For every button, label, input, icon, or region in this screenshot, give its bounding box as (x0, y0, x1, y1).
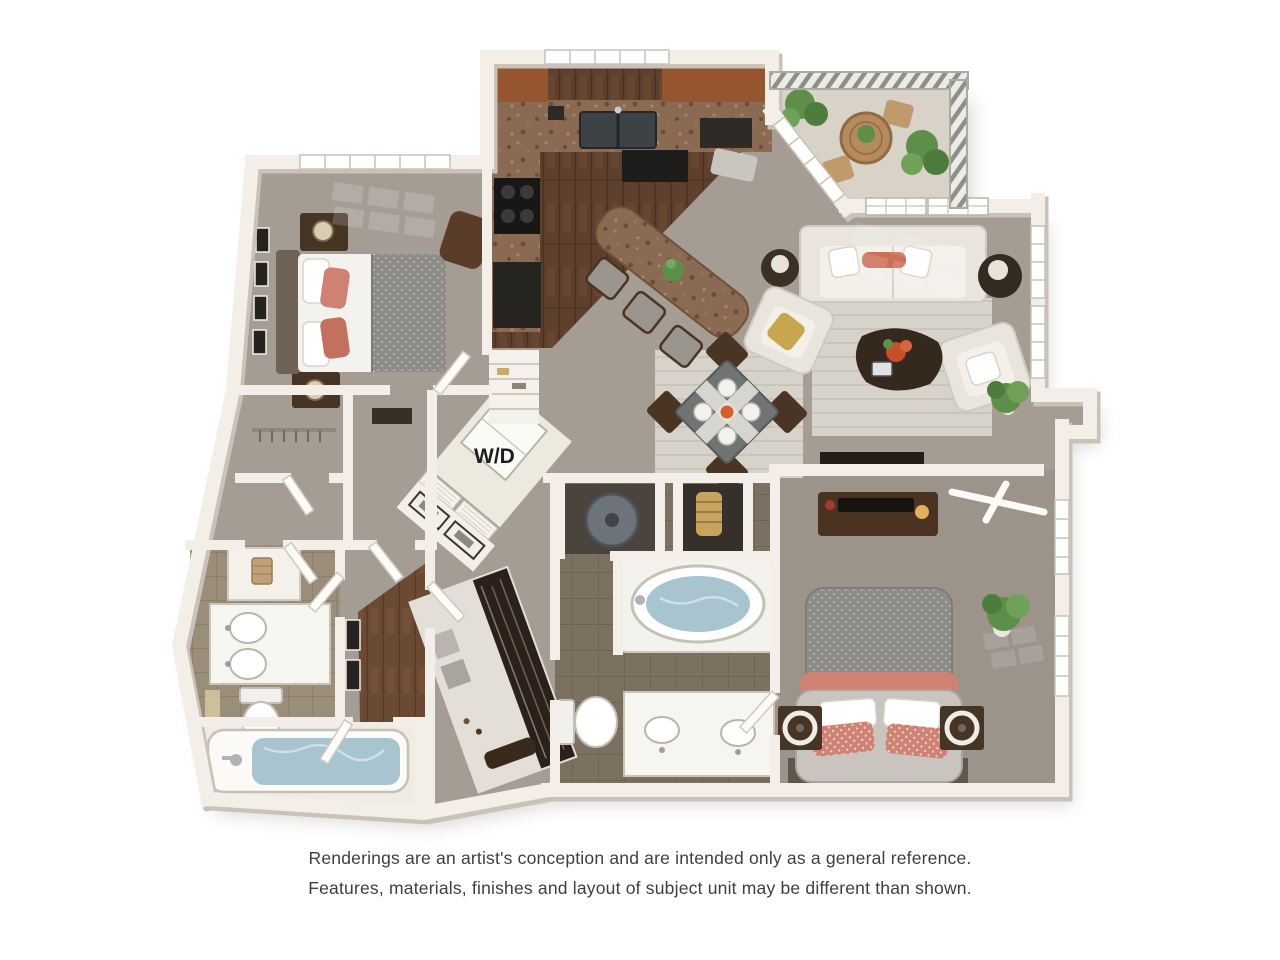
garden-tub (618, 556, 776, 652)
window (300, 155, 450, 169)
table-lamp (988, 260, 1008, 280)
bed-queen (276, 250, 446, 374)
table-lamp (771, 255, 789, 273)
coffee-table (856, 328, 943, 390)
tablet (872, 362, 892, 376)
page: { "labels": { "washer_dryer": "W/D" }, "… (0, 0, 1280, 960)
coffee-maker (548, 106, 564, 120)
stove (494, 178, 540, 234)
wicker-basket (252, 558, 272, 584)
table-lamp (313, 221, 333, 241)
floor-plan-stage: W/D (0, 0, 1280, 960)
patio-table (841, 113, 891, 163)
floor-plan-rendering: W/D (0, 0, 1280, 960)
bathtub (208, 730, 408, 792)
media-console (818, 492, 938, 536)
toilet (558, 697, 617, 747)
towels (205, 690, 220, 718)
tub-faucet (635, 595, 645, 605)
disclaimer-line-2: Features, materials, finishes and layout… (0, 878, 1280, 899)
double-vanity (624, 692, 774, 776)
pantry-closet (489, 350, 539, 424)
disclaimer: Renderings are an artist's conception an… (0, 848, 1280, 908)
linen-closet (678, 484, 748, 554)
water-heater-closet (562, 484, 660, 554)
stored-box (372, 408, 412, 424)
nightstand (940, 706, 984, 750)
window (545, 50, 669, 64)
wd-label: W/D (474, 445, 515, 468)
dishwasher (622, 150, 688, 182)
refrigerator (493, 262, 541, 328)
double-vanity (210, 604, 330, 684)
kitchen-sink (580, 107, 656, 149)
towel-stack (696, 492, 722, 536)
nightstand (778, 706, 822, 750)
bed-king (788, 588, 968, 784)
centerpiece (721, 406, 734, 419)
disclaimer-line-1: Renderings are an artist's conception an… (0, 848, 1280, 869)
